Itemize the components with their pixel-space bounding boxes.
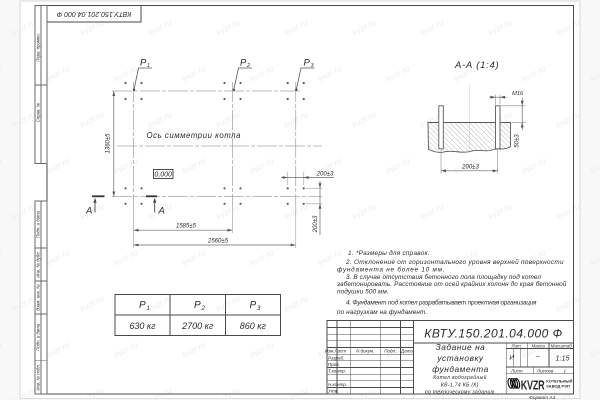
svg-text:860 кг: 860 кг	[240, 321, 267, 331]
svg-text:забетонировать. Расстояние о: забетонировать. Расстояние от осей крайн…	[336, 280, 567, 288]
svg-text:3. В случае отсутствия бет: 3. В случае отсутствия бетонного пола пл…	[346, 273, 541, 281]
svg-text:по нагрузкам на фундамент.: по нагрузкам на фундамент.	[337, 308, 427, 316]
svg-text:50±3: 50±3	[515, 134, 521, 148]
svg-text:KVZR: KVZR	[521, 379, 545, 393]
svg-text:2: 2	[246, 63, 250, 69]
svg-text:N докум.: N докум.	[356, 349, 374, 354]
svg-text:kvzr.ru: kvzr.ru	[0, 63, 3, 84]
svg-text:И: И	[509, 355, 514, 362]
svg-text:Листов: Листов	[536, 368, 554, 373]
svg-text:Лист: Лист	[510, 368, 523, 373]
svg-text:1360±5: 1360±5	[106, 133, 112, 154]
svg-text:Дата: Дата	[400, 349, 413, 354]
svg-text:КВТУ.150.201.04.000 Ф: КВТУ.150.201.04.000 Ф	[56, 10, 131, 17]
svg-text:Изм.Лист: Изм.Лист	[325, 349, 346, 354]
svg-text:Подп. и дата: Подп. и дата	[36, 323, 41, 351]
svg-text:Задание на: Задание на	[436, 342, 486, 352]
svg-text:ЗАВОД РЭП: ЗАВОД РЭП	[546, 384, 570, 389]
svg-text:Н.контр.: Н.контр.	[328, 382, 347, 387]
svg-text:kvzr.ru: kvzr.ru	[588, 339, 600, 360]
svg-text:2: 2	[201, 306, 206, 312]
svg-text:200±3: 200±3	[461, 164, 479, 170]
svg-text:1585±5: 1585±5	[176, 224, 197, 230]
svg-text:Формат А3: Формат А3	[529, 395, 556, 400]
svg-text:Инв. № подл.: Инв. № подл.	[36, 364, 41, 391]
svg-text:КВТУ.150.201.04.000 Ф: КВТУ.150.201.04.000 Ф	[424, 327, 562, 341]
svg-text:kvzr.ru: kvzr.ru	[0, 247, 3, 268]
svg-text:Лит.: Лит.	[510, 343, 522, 348]
svg-text:4. Фундамент под котел раз: 4. Фундамент под котел разрабатывает про…	[346, 299, 537, 307]
svg-text:630 кг: 630 кг	[129, 321, 156, 331]
svg-text:P: P	[194, 300, 201, 311]
svg-text:Котел водогрейный: Котел водогрейный	[433, 374, 487, 381]
svg-text:Ось симметрии котла: Ось симметрии котла	[147, 131, 242, 140]
svg-text:Подп.: Подп.	[384, 349, 396, 354]
svg-text:А-А (1:4): А-А (1:4)	[454, 60, 499, 71]
svg-text:1: 1	[147, 306, 150, 312]
svg-text:–: –	[535, 354, 540, 361]
svg-text:kvzr.ru: kvzr.ru	[0, 155, 3, 176]
svg-text:Взам. инв. №: Взам. инв. №	[36, 284, 41, 311]
svg-text:Подп. и дата: Подп. и дата	[36, 210, 41, 238]
svg-text:200±3: 200±3	[313, 215, 319, 233]
svg-text:kvzr.ru: kvzr.ru	[0, 339, 3, 360]
svg-text:kvzr.ru: kvzr.ru	[588, 63, 600, 84]
svg-text:0,000: 0,000	[154, 172, 172, 179]
svg-text:2. Отклонение от горизонтал: 2. Отклонение от горизонтального уровня …	[345, 258, 564, 266]
svg-text:kvzr.ru: kvzr.ru	[588, 247, 600, 268]
svg-text:P: P	[304, 58, 311, 69]
svg-text:Пров.: Пров.	[328, 362, 340, 367]
svg-text:А: А	[158, 206, 165, 217]
svg-text:КВ-1,74 КБ (К): КВ-1,74 КБ (К)	[441, 382, 479, 388]
svg-text:фундамента: фундамента	[432, 364, 488, 374]
svg-text:kvzr.ru: kvzr.ru	[588, 155, 600, 176]
svg-text:P: P	[140, 58, 147, 69]
svg-text:200±3: 200±3	[316, 171, 334, 177]
svg-text:P: P	[250, 300, 257, 311]
svg-text:Справ. №: Справ. №	[36, 102, 41, 122]
svg-text:Разраб.: Разраб.	[328, 355, 344, 360]
svg-text:2560±5: 2560±5	[207, 238, 229, 244]
svg-text:1. *Размеры для справок.: 1. *Размеры для справок.	[348, 249, 430, 257]
svg-text:1: 1	[147, 63, 150, 69]
svg-text:Перв. примен.: Перв. примен.	[36, 33, 41, 62]
svg-text:2700 кг: 2700 кг	[181, 321, 214, 331]
svg-text:подушки 500 мм.: подушки 500 мм.	[337, 288, 389, 296]
svg-text:Инв. № дубл.: Инв. № дубл.	[36, 251, 41, 277]
svg-text:М16: М16	[512, 91, 524, 97]
svg-text:Масса: Масса	[531, 343, 545, 348]
svg-text:P: P	[240, 58, 247, 69]
svg-text:установку: установку	[436, 353, 484, 363]
svg-text:P: P	[139, 300, 146, 311]
svg-text:Утв.: Утв.	[328, 389, 338, 394]
svg-text:фундамента не более 10 мм.: фундамента не более 10 мм.	[337, 266, 445, 274]
svg-text:А: А	[85, 206, 92, 217]
svg-text:по техническому заданию: по техническому заданию	[425, 389, 495, 395]
svg-text:Масштаб: Масштаб	[551, 343, 572, 348]
svg-text:Т.контр.: Т.контр.	[328, 369, 346, 374]
svg-text:1:15: 1:15	[556, 353, 571, 362]
